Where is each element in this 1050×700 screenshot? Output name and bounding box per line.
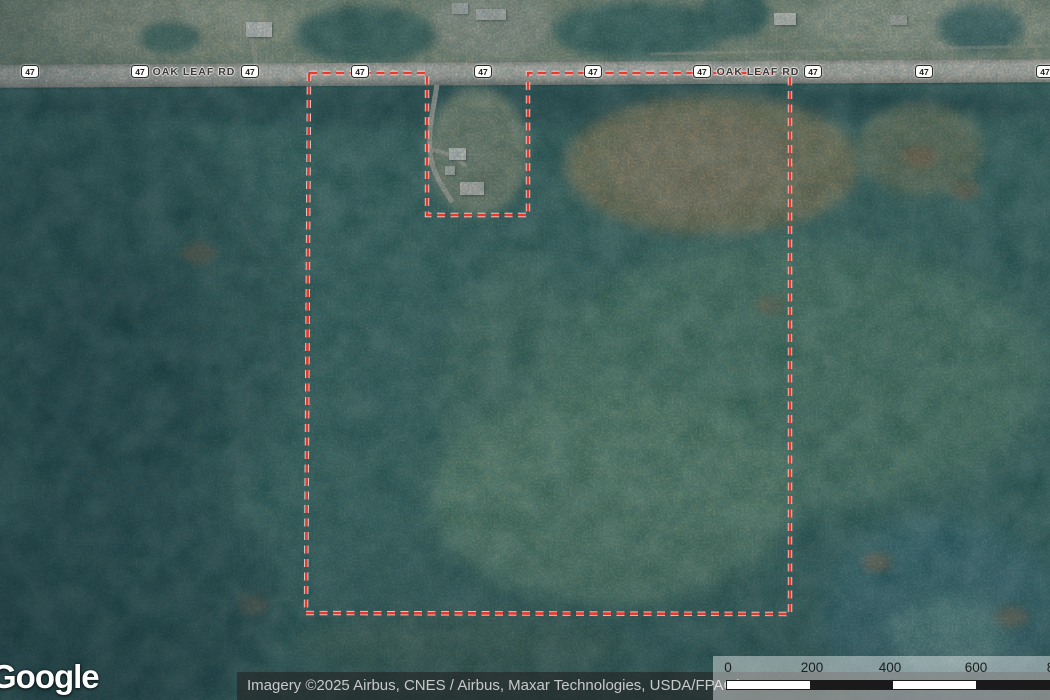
terrain-patch	[938, 4, 1023, 52]
terrain-patch	[428, 88, 528, 216]
building	[452, 3, 468, 14]
building	[445, 166, 455, 175]
scale-bar-segment	[727, 681, 810, 689]
google-logo[interactable]: Google	[0, 658, 99, 696]
terrain-patch	[238, 595, 268, 615]
scale-bar-segment	[976, 681, 1050, 689]
terrain-patch	[140, 22, 200, 54]
terrain-patch	[300, 612, 630, 674]
scale-bar-segment	[810, 681, 893, 689]
terrain-patch	[182, 242, 216, 264]
building	[246, 22, 272, 37]
terrain-patch	[950, 180, 980, 200]
building	[460, 182, 484, 195]
terrain-patch	[610, 113, 795, 215]
building	[774, 13, 796, 25]
terrain-patch	[995, 606, 1029, 628]
satellite-imagery[interactable]	[0, 0, 1050, 700]
scale-bar-track	[726, 680, 1050, 690]
building	[449, 148, 466, 160]
map-viewport[interactable]: 47474747474747474747OAK LEAF RDOAK LEAF …	[0, 0, 1050, 700]
building	[890, 15, 907, 25]
scale-tick-label: 0	[724, 660, 732, 675]
terrain-patch	[903, 145, 937, 167]
terrain-patch	[862, 552, 892, 572]
scale-tick-label: 600	[965, 660, 988, 675]
building	[476, 9, 506, 20]
terrain-patch	[755, 295, 785, 315]
scale-bar[interactable]: 0200400600800	[713, 656, 1050, 700]
terrain-patch	[295, 6, 435, 64]
terrain-patch	[430, 390, 792, 605]
scale-tick-label: 400	[879, 660, 902, 675]
attribution-text: Imagery ©2025 Airbus, CNES / Airbus, Max…	[247, 677, 772, 694]
scale-bar-segment	[893, 681, 976, 689]
scale-tick-label: 200	[801, 660, 824, 675]
